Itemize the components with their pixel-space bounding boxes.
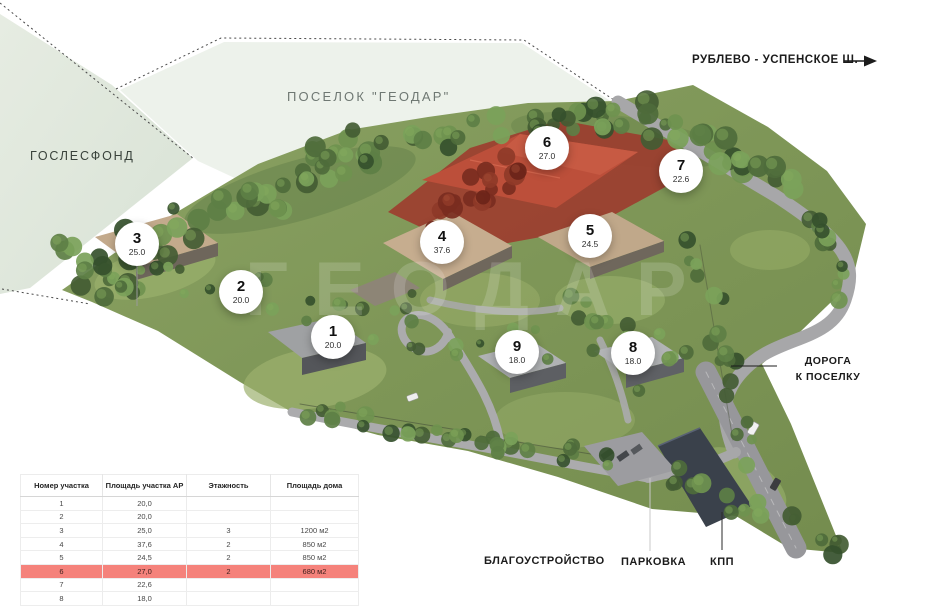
plot-marker-8[interactable]: 818.0	[611, 331, 655, 375]
checkpoint-label: КПП	[710, 556, 734, 568]
table-row-plot-3[interactable]: 325,031200 м2	[21, 524, 359, 538]
forest-fund-label: ГОСЛЕСФОНД	[30, 149, 135, 163]
plot-marker-1[interactable]: 120.0	[311, 315, 355, 359]
table-cell: 8	[21, 592, 103, 606]
table-cell	[271, 578, 359, 592]
table-row-plot-2[interactable]: 220,0	[21, 510, 359, 524]
table-header-cell: Площадь участка АР	[103, 475, 187, 497]
table-row-plot-4[interactable]: 437,62850 м2	[21, 537, 359, 551]
parking-label: ПАРКОВКА	[621, 556, 686, 568]
table-row-plot-1[interactable]: 120,0	[21, 497, 359, 511]
settlement-name-label: ПОСЕЛОК "ГЕОДАР"	[287, 89, 450, 104]
table-cell: 1200 м2	[271, 524, 359, 538]
table-cell: 680 м2	[271, 564, 359, 578]
plot-number: 8	[629, 340, 637, 355]
landscaping-label: БЛАГОУСТРОЙСТВО	[484, 555, 605, 567]
plots-table: Номер участкаПлощадь участка АРЭтажность…	[20, 474, 358, 606]
plot-marker-9[interactable]: 918.0	[495, 330, 539, 374]
plot-area-value: 24.5	[582, 240, 599, 249]
highway-label: РУБЛЕВО - УСПЕНСКОЕ Ш.	[692, 54, 858, 66]
plot-number: 3	[133, 231, 141, 246]
table-row-plot-8[interactable]: 818,0	[21, 592, 359, 606]
road-to-settlement-label: ДОРОГАК ПОСЕЛКУ	[788, 354, 868, 386]
table-cell	[271, 497, 359, 511]
plot-number: 1	[329, 324, 337, 339]
table-cell: 2	[187, 537, 271, 551]
plot-marker-2[interactable]: 220.0	[219, 270, 263, 314]
table-cell	[187, 578, 271, 592]
table-cell	[187, 592, 271, 606]
table-cell: 6	[21, 564, 103, 578]
plot-number: 2	[237, 279, 245, 294]
table-cell	[271, 592, 359, 606]
plot-number: 4	[438, 229, 446, 244]
table-header-cell: Номер участка	[21, 475, 103, 497]
plot-area-value: 37.6	[434, 246, 451, 255]
plot-number: 9	[513, 339, 521, 354]
plot-area-value: 18.0	[509, 356, 526, 365]
plot-marker-5[interactable]: 524.5	[568, 214, 612, 258]
table-cell: 3	[187, 524, 271, 538]
table-row-plot-7[interactable]: 722,6	[21, 578, 359, 592]
table-cell: 3	[21, 524, 103, 538]
table-row-plot-6[interactable]: 627,02680 м2	[21, 564, 359, 578]
table-cell	[187, 510, 271, 524]
table-cell: 2	[187, 551, 271, 565]
table-cell	[187, 497, 271, 511]
table-cell: 20,0	[103, 510, 187, 524]
plot-number: 5	[586, 223, 594, 238]
plot-area-value: 25.0	[129, 248, 146, 257]
table-cell: 25,0	[103, 524, 187, 538]
table-cell: 5	[21, 551, 103, 565]
table-cell: 24,5	[103, 551, 187, 565]
plot-marker-3[interactable]: 325.0	[115, 222, 159, 266]
plot-marker-7[interactable]: 722.6	[659, 149, 703, 193]
table-cell: 2	[21, 510, 103, 524]
table-cell: 4	[21, 537, 103, 551]
plot-marker-6[interactable]: 627.0	[525, 126, 569, 170]
table-cell: 2	[187, 564, 271, 578]
plot-area-value: 22.6	[673, 175, 690, 184]
table-cell: 20,0	[103, 497, 187, 511]
table-header-cell: Площадь дома	[271, 475, 359, 497]
table-row-plot-5[interactable]: 524,52850 м2	[21, 551, 359, 565]
masterplan-page: ГЕОДАР 120.0220.0325.0437.6524.5627.0722…	[0, 0, 926, 606]
table-cell: 850 м2	[271, 537, 359, 551]
table-cell: 850 м2	[271, 551, 359, 565]
plots-table-body: 120,0220,0325,031200 м2437,62850 м2524,5…	[21, 497, 359, 606]
plot-area-value: 27.0	[539, 152, 556, 161]
table-cell: 22,6	[103, 578, 187, 592]
plots-table-header: Номер участкаПлощадь участка АРЭтажность…	[21, 475, 359, 497]
table-cell: 37,6	[103, 537, 187, 551]
table-cell: 18,0	[103, 592, 187, 606]
plot-area-value: 18.0	[625, 357, 642, 366]
table-cell: 27,0	[103, 564, 187, 578]
table-header-cell: Этажность	[187, 475, 271, 497]
plot-number: 7	[677, 158, 685, 173]
plot-area-value: 20.0	[233, 296, 250, 305]
table-cell	[271, 510, 359, 524]
plot-marker-4[interactable]: 437.6	[420, 220, 464, 264]
plot-number: 6	[543, 135, 551, 150]
table-cell: 7	[21, 578, 103, 592]
table-cell: 1	[21, 497, 103, 511]
plot-area-value: 20.0	[325, 341, 342, 350]
